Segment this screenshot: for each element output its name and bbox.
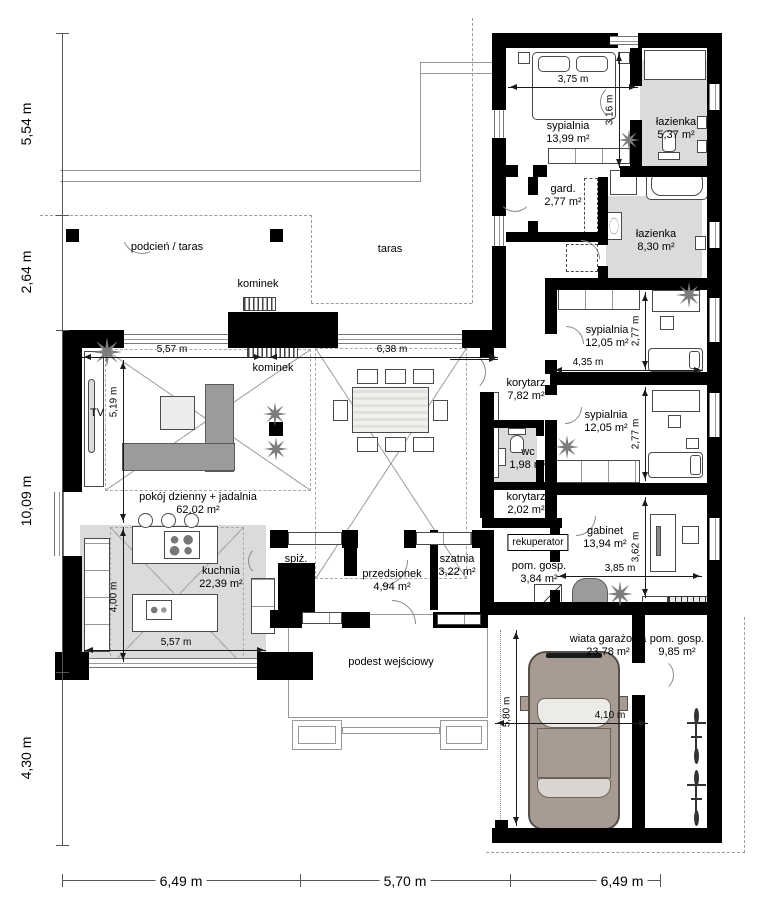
dim-label: 4,10 m [595, 710, 626, 721]
room-name: wiata garażowa [570, 633, 646, 646]
dining-chair [385, 437, 406, 452]
bicycle-icon [694, 810, 699, 826]
wall [506, 165, 518, 177]
dining-chair [413, 369, 434, 384]
dimension-chain-bottom [62, 880, 660, 881]
wall [536, 420, 544, 436]
room-name: korytarz [506, 491, 545, 504]
side-table [686, 438, 699, 449]
room-label-spiz: spiż. 3,22 m² [277, 553, 314, 579]
bicycle-icon [691, 736, 702, 738]
dim-line [123, 527, 124, 662]
wall [630, 48, 642, 86]
wall [270, 530, 288, 548]
window [338, 334, 462, 344]
carport-open-side-line [500, 630, 501, 826]
chain-tick [660, 874, 661, 887]
dim-line [123, 360, 124, 523]
washbasin [606, 212, 622, 240]
room-label-sypialnia-low: sypialnia 12,05 m² [584, 409, 627, 435]
terrace-post [66, 229, 79, 242]
label-rekuperator: rekuperator [507, 534, 568, 551]
room-area: 22,39 m² [199, 578, 242, 591]
roof-outline [420, 62, 421, 182]
room-name: sypialnia [584, 409, 627, 422]
wall [404, 530, 416, 548]
dim-line [645, 497, 646, 598]
room-name: kuchnia [199, 565, 242, 578]
cooktop [164, 531, 200, 559]
room-name: przedsionek [362, 568, 421, 581]
wall-fixture [697, 140, 707, 153]
door-arc [498, 178, 532, 212]
door-arc [640, 658, 674, 692]
pillow [576, 56, 608, 72]
bathroom-cabinet [644, 50, 706, 80]
dim-label: 5,57 m [161, 637, 192, 648]
chain-tick [56, 845, 69, 846]
dim-line [516, 630, 517, 826]
window [709, 518, 720, 560]
dim-line [268, 357, 498, 358]
dim-label: 5,19 m [109, 387, 120, 418]
room-area: 23,78 m² [570, 646, 646, 659]
room-area: 12,05 m² [585, 337, 628, 350]
room-area: 9,85 m² [650, 646, 704, 659]
wall [598, 177, 608, 245]
terrace-dashed-boundary [311, 303, 472, 304]
wall [492, 48, 506, 110]
room-name: korytarz [506, 377, 545, 390]
sofa-arm-horizontal [122, 443, 235, 471]
bicycle-icon [691, 798, 702, 800]
dimension-chain-left [62, 33, 63, 845]
room-area: 2,02 m² [506, 504, 545, 517]
wall [482, 420, 542, 428]
dim-label: 2,77 m [631, 316, 642, 347]
wardrobe [548, 148, 640, 164]
plant-icon [676, 282, 702, 308]
room-label-wiata: wiata garażowa 23,78 m² [570, 633, 646, 659]
dining-chair [413, 437, 434, 452]
room-area: 2,77 m² [544, 196, 581, 209]
desk-chair [660, 316, 674, 330]
label-podcien-taras: podcień / taras [131, 241, 203, 254]
dining-chair [333, 400, 348, 421]
room-name: sypialnia [585, 324, 628, 337]
room-name: pom. gosp. [650, 633, 704, 646]
dim-label: 5,57 m [157, 344, 188, 355]
chain-label: 5,70 m [380, 873, 431, 889]
room-name: łazienka [636, 228, 676, 241]
plant-icon [555, 435, 579, 459]
desk-chair [682, 526, 699, 544]
wall [545, 278, 709, 290]
dim-line [84, 650, 266, 651]
roof-outline [60, 181, 420, 182]
room-label-szatnia: szatnia 3,22 m² [438, 553, 475, 579]
wall [492, 246, 506, 332]
coffee-table [160, 396, 195, 430]
room-area: 5,37 m² [656, 129, 696, 142]
roof-outline [420, 62, 492, 63]
plant-icon [607, 581, 633, 607]
window [124, 334, 228, 344]
wall [545, 290, 557, 334]
porch-post [298, 726, 336, 744]
chain-tick [56, 215, 69, 216]
window [709, 222, 720, 248]
dining-chair [433, 400, 448, 421]
car-rear-window [537, 778, 611, 798]
bicycle-icon [694, 748, 699, 764]
terrace-post [270, 229, 283, 242]
window [494, 216, 504, 246]
wall [492, 33, 618, 48]
dim-line [645, 387, 646, 481]
dining-table [352, 387, 429, 433]
dim-label: 2,77 m [631, 419, 642, 450]
wall [480, 392, 494, 518]
wall [462, 330, 506, 348]
floor-plan-canvas: sypialnia 13,99 m² łazienka 5,37 m² gard… [0, 0, 758, 911]
room-label-sypialnia-top: sypialnia 13,99 m² [546, 120, 589, 146]
wall [342, 530, 358, 548]
room-label-pokoj-dzienny: pokój dzienny + jadalnia 62,02 m² [139, 491, 257, 517]
kitchen-island [132, 594, 218, 632]
wall [545, 420, 557, 486]
room-label-kuchnia: kuchnia 22,39 m² [199, 565, 242, 591]
room-label-sypialnia-mid: sypialnia 12,05 m² [585, 324, 628, 350]
dim-label: 4,00 m [109, 582, 120, 613]
fireplace-flue-outside [243, 297, 276, 311]
toilet-tank [508, 428, 526, 435]
wardrobe [558, 288, 640, 310]
chain-tick [56, 330, 69, 331]
plant-icon [618, 129, 640, 151]
room-area: 3,22 m² [438, 566, 475, 579]
window [89, 658, 257, 668]
kitchen-cabinet-row [84, 538, 110, 652]
room-label-korytarz-small: korytarz 2,02 m² [506, 491, 545, 517]
terrace-dashed-boundary [40, 215, 312, 216]
dim-label: 6,38 m [377, 344, 408, 355]
dining-chair [357, 437, 378, 452]
pillow [690, 455, 701, 475]
room-label-gard: gard. 2,77 m² [544, 183, 581, 209]
dim-line [645, 292, 646, 370]
wall [62, 556, 82, 654]
terrace-dashed-boundary [472, 18, 473, 303]
wall [533, 165, 547, 177]
wall [270, 610, 302, 628]
label-podest: podest wejściowy [348, 656, 434, 669]
garage-dashed-boundary [486, 852, 745, 853]
carport-post [495, 820, 508, 832]
room-name: spiż. [277, 553, 314, 566]
label-kominek-inside: kominek [253, 362, 294, 375]
chain-label: 10,09 m [18, 476, 34, 527]
label-tv: TV [90, 407, 104, 420]
room-name: pokój dzienny + jadalnia [139, 491, 257, 504]
chain-label: 4,30 m [18, 737, 34, 780]
closet-shelves [584, 178, 598, 234]
room-area: 8,30 m² [636, 241, 676, 254]
desk [650, 514, 676, 572]
chain-tick [62, 874, 63, 887]
dim-label: 3,62 m [631, 532, 642, 563]
label-kominek-outside: kominek [238, 278, 279, 291]
room-area: 62,02 m² [139, 504, 257, 517]
desk [652, 290, 700, 312]
label-taras: taras [378, 243, 402, 256]
door-arc [446, 352, 486, 392]
plant-icon [264, 437, 288, 461]
dim-label: 3,16 m [605, 95, 616, 126]
dim-line [553, 370, 703, 371]
room-name: szatnia [438, 553, 475, 566]
window [709, 84, 720, 110]
wall [472, 530, 494, 548]
room-label-lazienka-top: łazienka 5,37 m² [656, 116, 696, 142]
built-in-cabinet [288, 532, 342, 545]
pillow [538, 56, 570, 72]
dim-label: 4,35 m [573, 357, 604, 368]
room-label-przedsionek: przedsionek 4,94 m² [362, 568, 421, 594]
porch-step [342, 727, 440, 734]
desk-chair [668, 415, 681, 428]
room-area: 12,05 m² [584, 422, 627, 435]
room-area: 13,99 m² [546, 133, 589, 146]
wall-fixture [695, 236, 706, 250]
room-label-wc: wc 1,98 m² [509, 446, 546, 472]
room-label-korytarz-main: korytarz 7,82 m² [506, 377, 545, 403]
wall [492, 828, 722, 843]
dim-line [495, 723, 648, 724]
wall-fixture [697, 116, 707, 129]
car-mirror [619, 696, 628, 711]
room-label-lazienka-big: łazienka 8,30 m² [636, 228, 676, 254]
room-area: 3,22 m² [277, 566, 314, 579]
kitchen-sink [146, 600, 172, 620]
window [610, 36, 638, 45]
built-in-cabinet [437, 614, 481, 625]
room-name: gabinet [583, 525, 626, 538]
wall [707, 33, 722, 843]
chain-tick [56, 33, 69, 34]
chain-tick [56, 672, 69, 673]
chain-label: 6,49 m [597, 873, 648, 889]
wall [632, 695, 645, 828]
wall [550, 372, 709, 385]
room-name: wc [509, 446, 546, 459]
dining-chair [357, 369, 378, 384]
window [494, 110, 504, 138]
toilet-tank [658, 152, 680, 160]
garage-dashed-boundary [744, 617, 745, 853]
room-area: 4,94 m² [362, 581, 421, 594]
room-name: pom. gosp. [512, 560, 566, 573]
dim-label: 3,85 m [605, 563, 636, 574]
wall [480, 602, 722, 615]
car-mirror [520, 696, 529, 711]
built-in-cabinet [302, 612, 342, 624]
chain-label: 2,64 m [18, 251, 34, 294]
room-name: gard. [544, 183, 581, 196]
window [709, 393, 720, 437]
room-area: 13,94 m² [583, 538, 626, 551]
room-name: łazienka [656, 116, 696, 129]
room-label-gabinet: gabinet 13,94 m² [583, 525, 626, 551]
room-area: 7,82 m² [506, 390, 545, 403]
wardrobe [554, 460, 640, 483]
chain-tick [300, 874, 301, 887]
chain-label: 5,54 m [18, 103, 34, 146]
wall [480, 545, 494, 602]
wall [620, 166, 708, 177]
car-roof [537, 728, 611, 778]
dim-line [619, 52, 620, 168]
wall [257, 652, 313, 680]
dining-chair [385, 369, 406, 384]
built-in-cabinet [416, 532, 472, 545]
wall [55, 652, 89, 680]
wall [545, 483, 709, 495]
dim-line [557, 576, 702, 577]
chain-tick [510, 874, 511, 887]
desk [652, 390, 700, 412]
porch-post [446, 726, 482, 744]
nightstand [518, 52, 530, 64]
roof-outline [60, 170, 420, 171]
wall-fireplace-block [228, 312, 338, 348]
terrace-dashed-boundary [311, 215, 312, 303]
monitor [656, 526, 661, 556]
chain-label: 6,49 m [156, 873, 207, 889]
structural-post [269, 422, 283, 436]
room-area: 1,98 m² [509, 459, 546, 472]
dim-line [82, 357, 263, 358]
plant-icon [92, 337, 122, 367]
wall [62, 348, 82, 492]
plant-icon [263, 402, 287, 426]
room-label-pom-gosp-big: pom. gosp. 9,85 m² [650, 633, 704, 659]
dim-label: 3,75 m [558, 74, 589, 85]
door-arc [248, 546, 278, 576]
wall [630, 120, 642, 170]
window [709, 298, 720, 342]
roof-outline [420, 73, 492, 74]
wall [342, 612, 370, 628]
room-name: sypialnia [546, 120, 589, 133]
